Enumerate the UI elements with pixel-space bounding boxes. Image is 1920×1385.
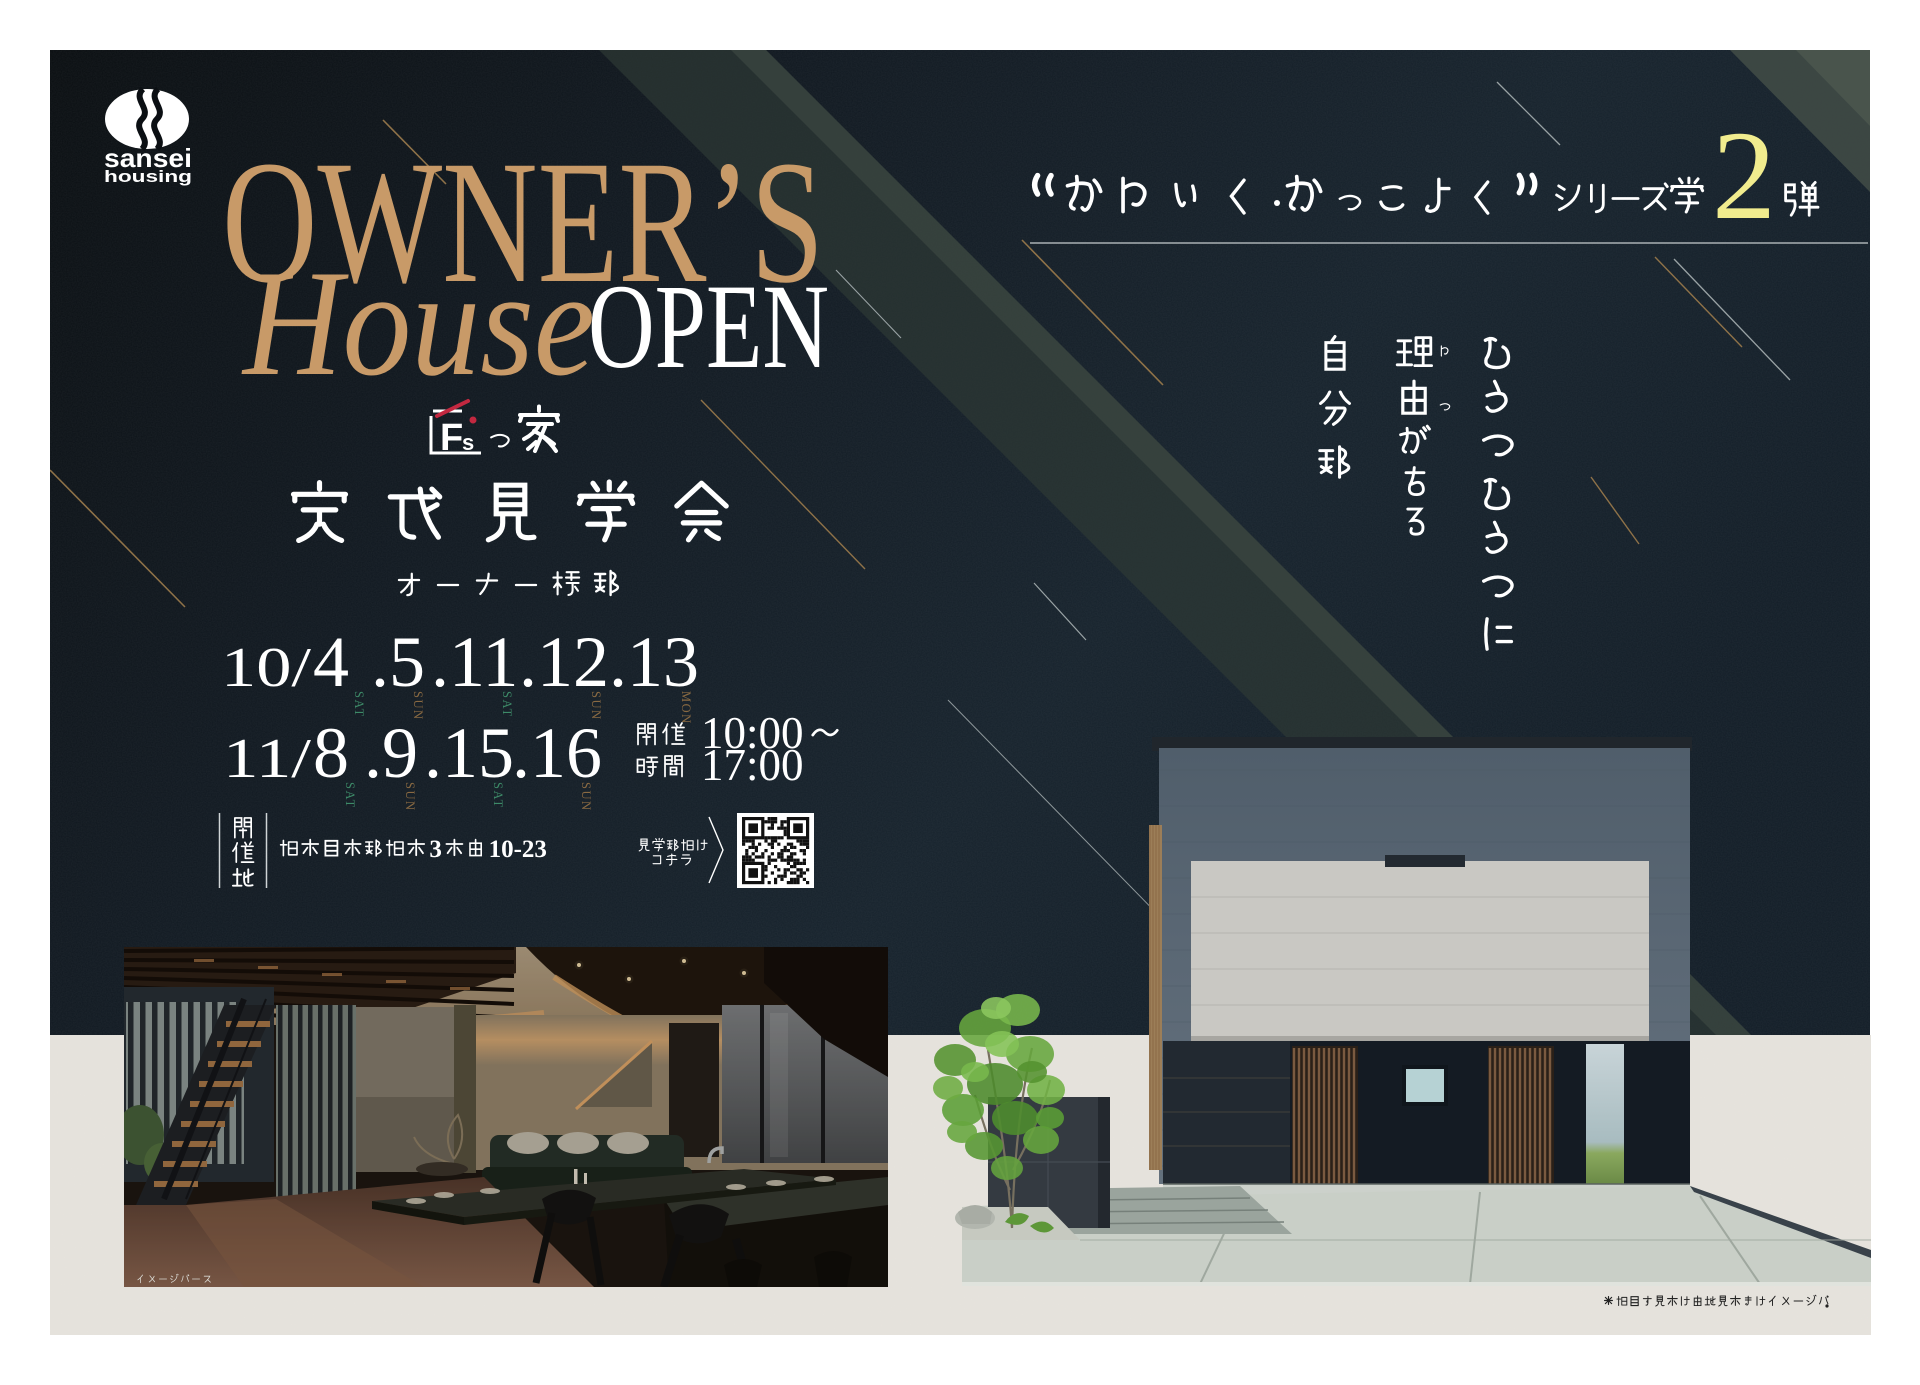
svg-text:8: 8	[313, 713, 349, 793]
svg-text:OPEN: OPEN	[588, 260, 829, 394]
svg-text:.13: .13	[609, 622, 699, 702]
svg-text:.15: .15	[424, 713, 514, 793]
svg-text:s: s	[462, 430, 474, 455]
svg-text:11/: 11/	[223, 728, 312, 790]
svg-text:3: 3	[429, 836, 442, 863]
svg-text:SAT: SAT	[343, 782, 357, 809]
svg-text:.16: .16	[512, 713, 602, 793]
svg-text:10/: 10/	[221, 637, 312, 699]
svg-text:House: House	[241, 239, 595, 407]
svg-text:SUN: SUN	[579, 782, 593, 812]
svg-text:.5: .5	[371, 622, 425, 702]
svg-text:housing: housing	[104, 167, 192, 186]
svg-text:.11: .11	[431, 622, 518, 702]
svg-text:17:00: 17:00	[701, 740, 804, 790]
svg-text:SUN: SUN	[403, 782, 417, 812]
svg-text:4: 4	[313, 622, 349, 702]
svg-text:SAT: SAT	[491, 782, 505, 809]
svg-text:2: 2	[1712, 106, 1776, 246]
svg-text:.12: .12	[519, 622, 609, 702]
svg-text:.9: .9	[364, 713, 418, 793]
svg-text:MON: MON	[679, 691, 693, 725]
svg-text:10-23: 10-23	[489, 836, 547, 863]
svg-text:F: F	[440, 417, 463, 459]
